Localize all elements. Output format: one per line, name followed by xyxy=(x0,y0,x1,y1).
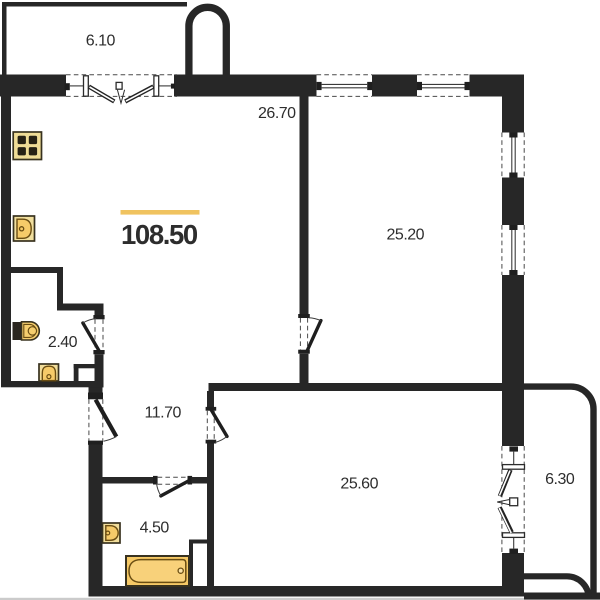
svg-text:11.70: 11.70 xyxy=(145,404,182,421)
svg-text:25.60: 25.60 xyxy=(340,475,378,492)
svg-text:108.50: 108.50 xyxy=(121,219,198,250)
svg-text:6.10: 6.10 xyxy=(86,33,116,50)
svg-text:26.70: 26.70 xyxy=(258,105,296,122)
svg-text:2.40: 2.40 xyxy=(48,334,78,351)
svg-text:4.50: 4.50 xyxy=(140,519,170,536)
svg-text:25.20: 25.20 xyxy=(387,227,425,244)
svg-text:6.30: 6.30 xyxy=(545,471,575,488)
